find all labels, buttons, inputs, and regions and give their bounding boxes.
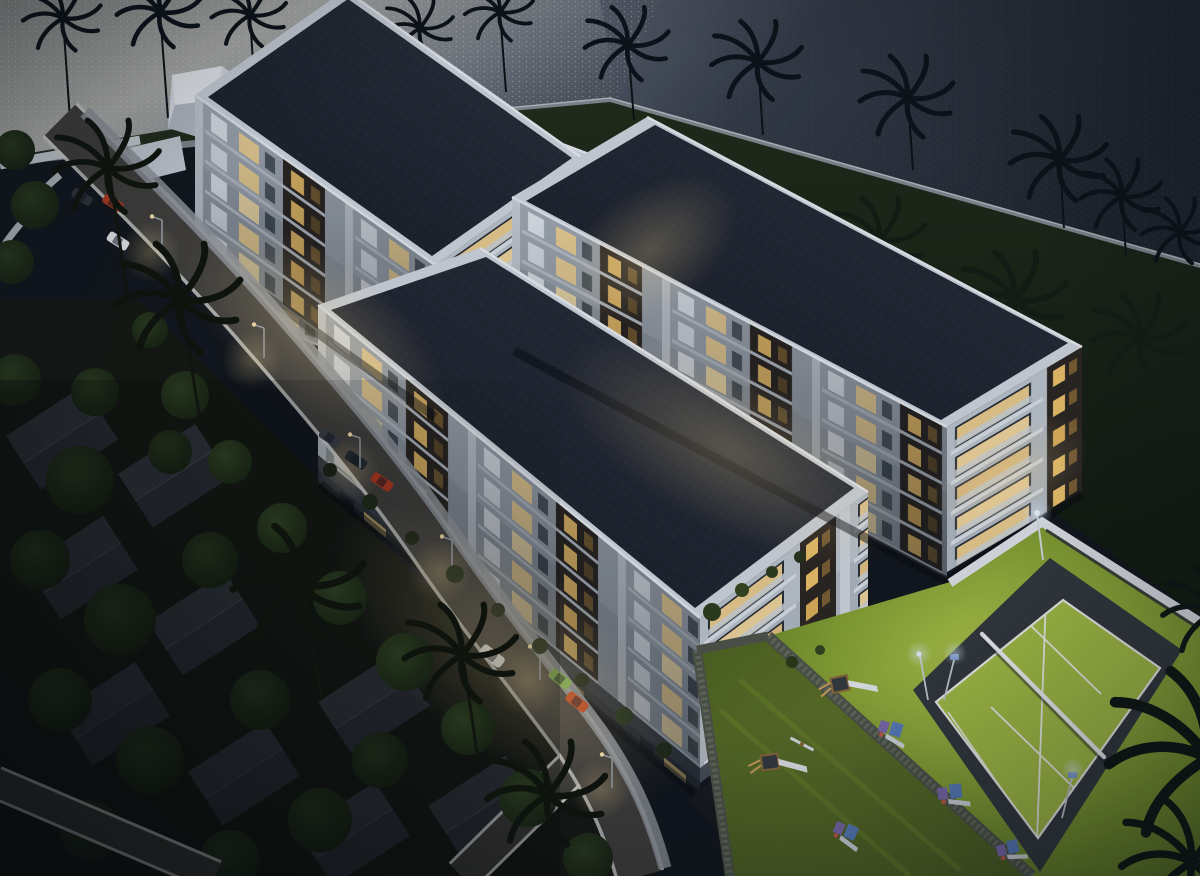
architectural-render: Aerial dusk rendering of a gated residen…: [0, 0, 1200, 876]
scene-canvas: [0, 0, 1200, 876]
vignette: [0, 0, 1200, 876]
